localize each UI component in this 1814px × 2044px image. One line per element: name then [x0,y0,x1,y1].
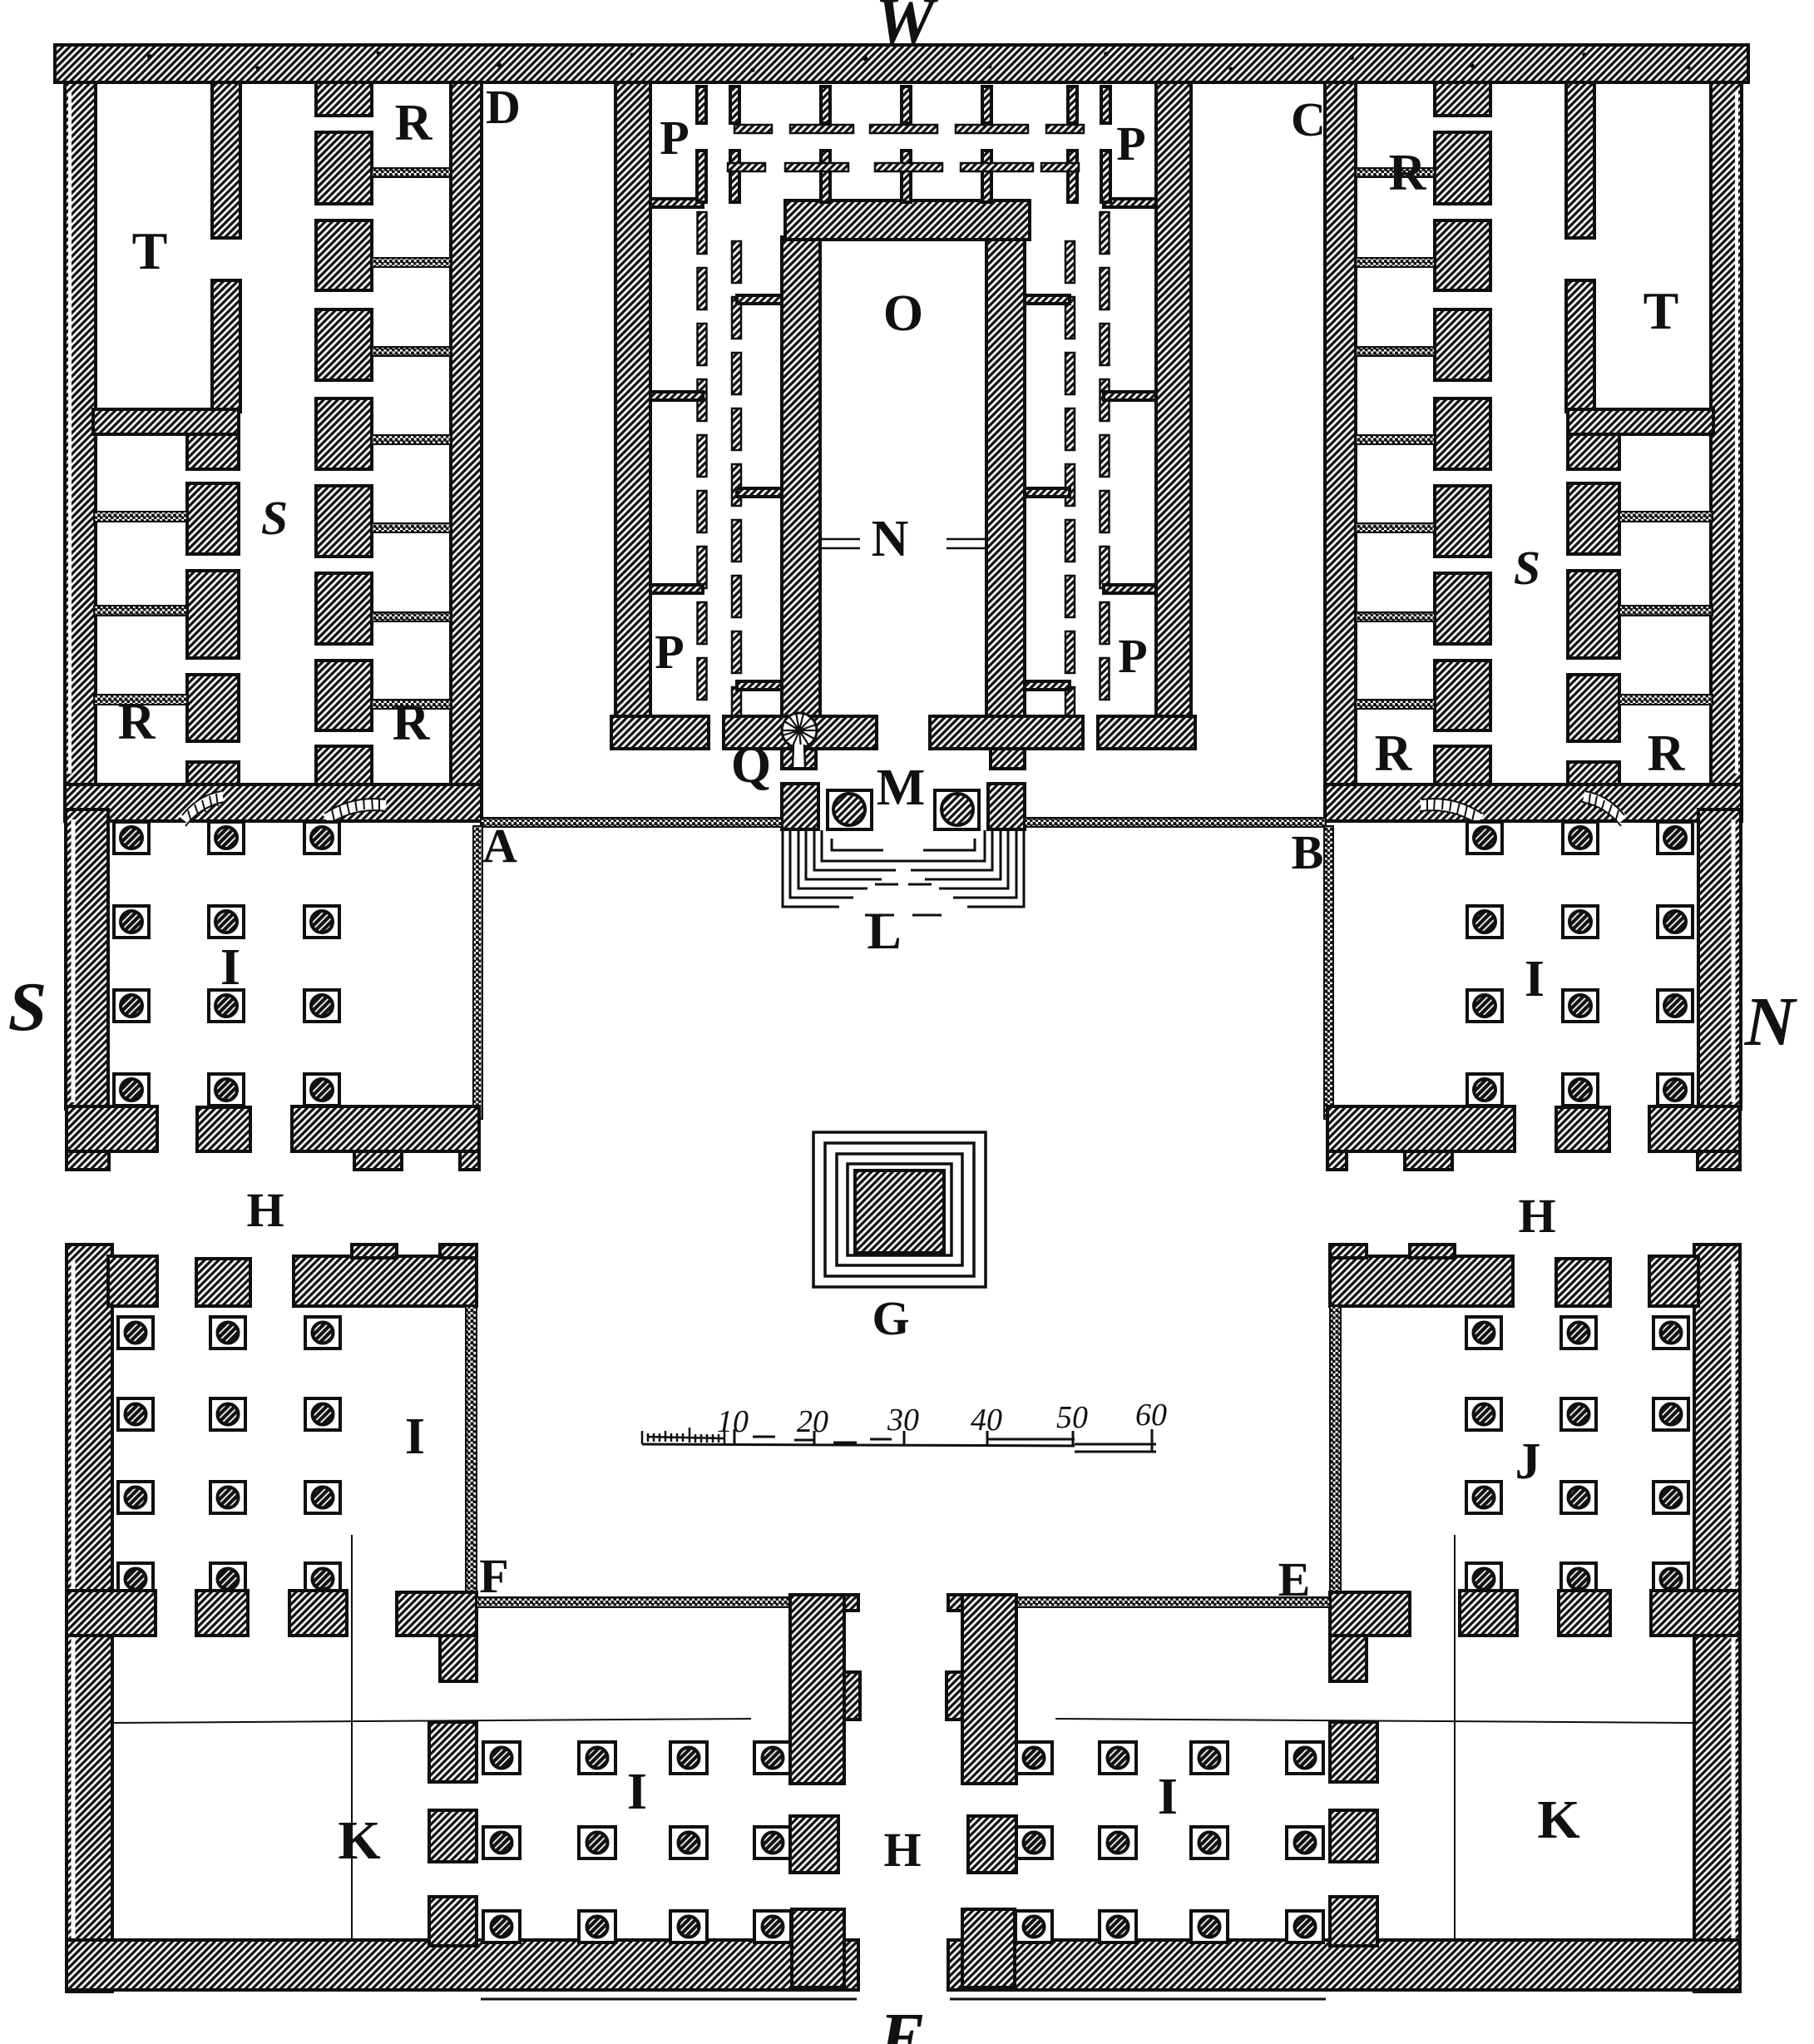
svg-text:50: 50 [1056,1400,1088,1435]
svg-text:Q: Q [731,737,771,794]
svg-text:I: I [405,1408,425,1465]
svg-text:I: I [1525,951,1545,1007]
svg-text:D: D [486,80,521,134]
svg-text:60: 60 [1135,1398,1167,1433]
svg-text:E: E [1278,1552,1311,1606]
svg-text:R: R [393,695,431,751]
svg-text:W: W [875,0,938,58]
svg-text:P: P [1118,629,1147,683]
svg-text:S: S [8,968,47,1046]
svg-text:R: R [1389,145,1427,201]
svg-text:H: H [1518,1189,1555,1243]
svg-text:I: I [627,1764,647,1820]
svg-text:M: M [877,760,926,816]
svg-text:20: 20 [797,1404,828,1439]
svg-text:L: L [867,903,901,960]
svg-text:E: E [878,1999,926,2044]
svg-text:10: 10 [717,1404,749,1439]
svg-text:R: R [1375,725,1413,782]
svg-text:J: J [1515,1433,1541,1490]
svg-text:T: T [132,221,168,280]
svg-text:R: R [395,95,433,151]
svg-text:P: P [1116,116,1145,171]
svg-text:N: N [1744,983,1798,1061]
svg-text:R: R [118,694,156,750]
svg-text:S: S [261,491,288,545]
svg-text:H: H [883,1823,921,1877]
svg-text:R: R [1648,725,1686,782]
svg-text:T: T [1643,281,1679,340]
svg-text:40: 40 [971,1403,1002,1438]
svg-text:P: P [660,111,689,165]
svg-text:P: P [655,625,684,679]
svg-text:K: K [338,1810,380,1871]
svg-text:O: O [883,285,923,342]
svg-text:C: C [1291,92,1326,146]
svg-text:30: 30 [887,1403,919,1438]
svg-text:F: F [479,1549,508,1603]
svg-text:I: I [1158,1769,1178,1825]
svg-text:A: A [482,819,517,873]
svg-text:G: G [872,1291,909,1345]
svg-text:B: B [1292,825,1324,879]
svg-text:K: K [1537,1789,1579,1850]
svg-text:S: S [1514,541,1540,595]
svg-text:I: I [220,939,240,996]
svg-text:N: N [872,511,909,567]
svg-text:H: H [246,1183,284,1237]
